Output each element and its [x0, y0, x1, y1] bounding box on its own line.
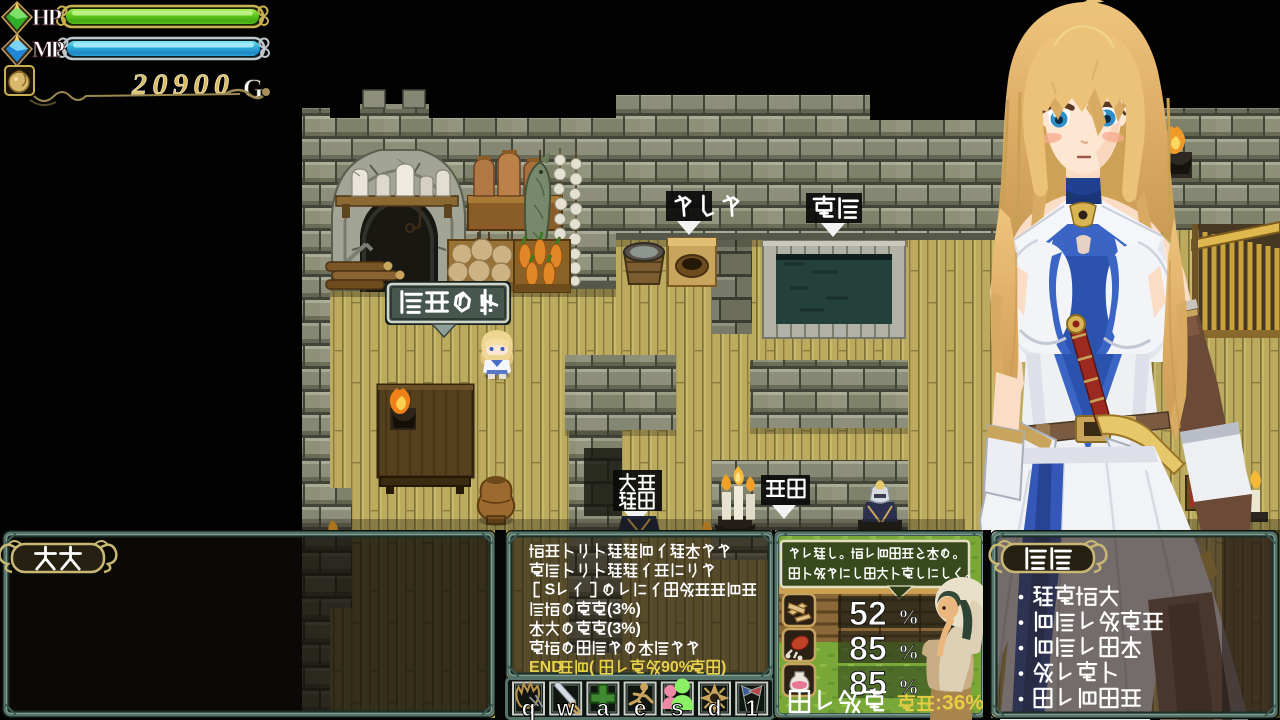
svg-text:d: d	[707, 695, 721, 720]
svg-text:S: S	[545, 582, 556, 599]
svg-text:1: 1	[745, 695, 758, 720]
svg-text::36%: :36%	[935, 692, 984, 715]
svg-text:e: e	[634, 695, 647, 720]
svg-text:a: a	[597, 695, 610, 720]
svg-text:q: q	[521, 695, 535, 720]
svg-text:(3%): (3%)	[607, 601, 641, 618]
svg-text:(3%): (3%)	[607, 620, 641, 637]
svg-text:%: %	[898, 640, 919, 664]
svg-text:85: 85	[849, 630, 887, 668]
svg-text:%: %	[898, 605, 919, 629]
svg-text:(: (	[589, 659, 595, 676]
svg-text:END: END	[529, 659, 563, 676]
svg-text:!!: !!	[478, 290, 495, 318]
svg-text:s: s	[671, 695, 684, 720]
svg-text:90%: 90%	[661, 659, 693, 676]
svg-text:w: w	[556, 695, 575, 720]
svg-text:HP: HP	[32, 5, 62, 30]
svg-text:): )	[721, 659, 726, 676]
svg-text:MP: MP	[32, 37, 65, 62]
svg-text:52: 52	[849, 595, 887, 633]
